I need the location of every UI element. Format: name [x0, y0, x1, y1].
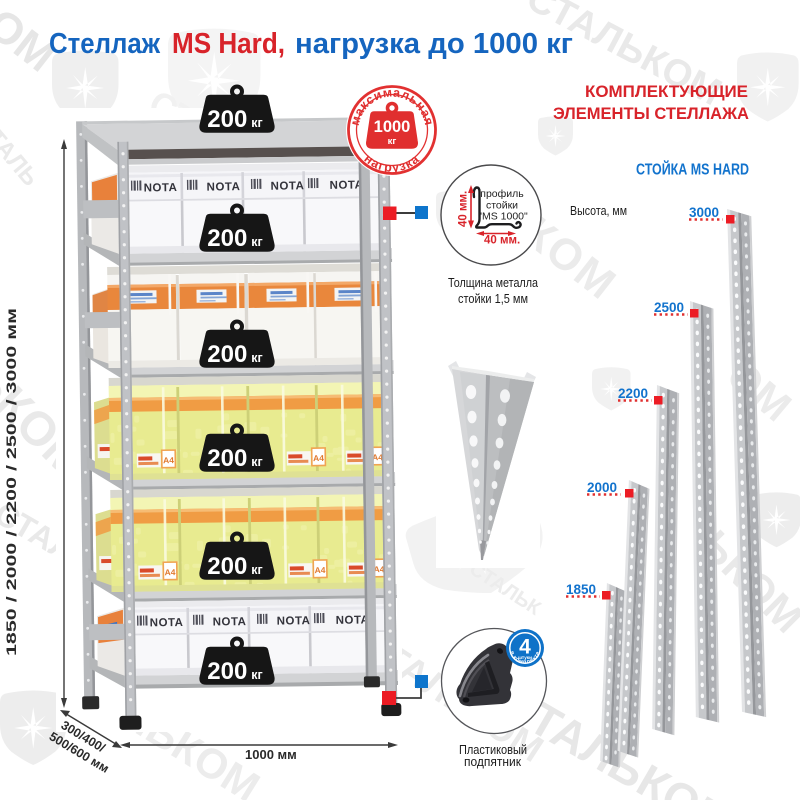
svg-text:2000: 2000: [587, 480, 617, 495]
svg-text:NOTA: NOTA: [277, 615, 311, 627]
svg-text:3000: 3000: [689, 205, 719, 220]
svg-text:Толщина металла: Толщина металла: [448, 275, 539, 290]
svg-text:1850 / 2000 / 2200 / 2500 / 30: 1850 / 2000 / 2200 / 2500 / 3000 мм: [3, 308, 19, 656]
svg-text:NOTA: NOTA: [213, 616, 247, 628]
svg-text:A4: A4: [163, 455, 174, 465]
svg-text:MS Hard,: MS Hard,: [172, 28, 285, 60]
svg-text:NOTA: NOTA: [207, 181, 241, 193]
svg-text:штуки: штуки: [518, 655, 532, 660]
svg-text:A4: A4: [313, 453, 324, 463]
svg-text:NOTA: NOTA: [271, 180, 305, 192]
svg-text:NOTA: NOTA: [150, 617, 184, 629]
svg-text:Высота, мм: Высота, мм: [570, 203, 627, 218]
svg-text:СТОЙКА MS HARD: СТОЙКА MS HARD: [636, 160, 749, 179]
svg-text:кг: кг: [388, 136, 397, 147]
svg-text:1850: 1850: [566, 582, 596, 597]
svg-text:NOTA: NOTA: [330, 179, 364, 191]
svg-text:подпятник: подпятник: [464, 755, 522, 769]
svg-text:40 мм.: 40 мм.: [484, 235, 520, 247]
svg-text:КОМПЛЕКТУЮЩИЕ: КОМПЛЕКТУЮЩИЕ: [585, 83, 748, 101]
svg-text:1000 мм: 1000 мм: [245, 747, 297, 762]
svg-text:"MS 1000": "MS 1000": [478, 211, 528, 223]
svg-text:1000: 1000: [374, 118, 411, 136]
svg-text:ЭЛЕМЕНТЫ СТЕЛЛАЖА: ЭЛЕМЕНТЫ СТЕЛЛАЖА: [553, 105, 749, 123]
svg-text:A4: A4: [315, 565, 326, 575]
svg-text:NOTA: NOTA: [336, 614, 370, 626]
svg-text:стойки 1,5 мм: стойки 1,5 мм: [458, 291, 528, 306]
svg-text:2500: 2500: [654, 300, 684, 315]
svg-text:профиль: профиль: [480, 188, 524, 200]
svg-text:A4: A4: [165, 567, 176, 577]
svg-text:2200: 2200: [618, 386, 648, 401]
svg-text:NOTA: NOTA: [144, 182, 178, 194]
svg-text:40 мм.: 40 мм.: [458, 191, 470, 227]
svg-text:нагрузка до 1000 кг: нагрузка до 1000 кг: [295, 28, 573, 60]
svg-text:Стеллаж: Стеллаж: [49, 28, 160, 60]
